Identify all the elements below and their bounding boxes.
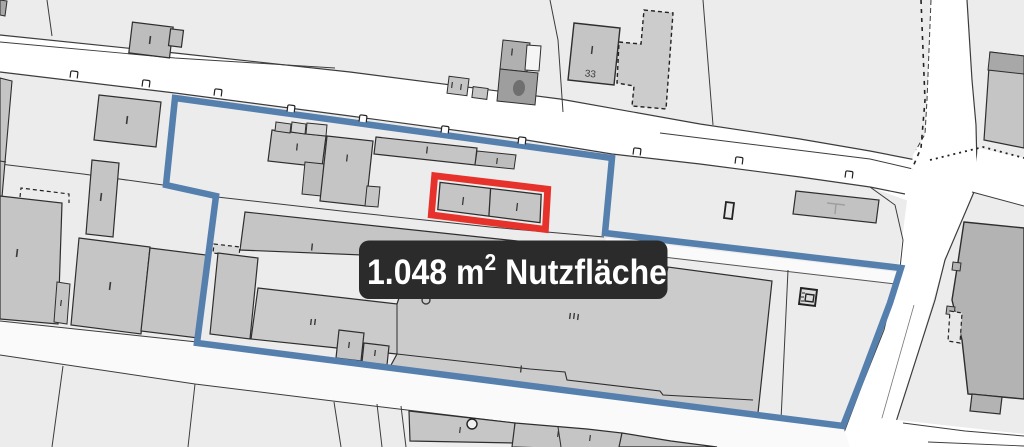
svg-text:1.048 m2 Nutzfläche: 1.048 m2 Nutzfläche [367, 249, 667, 292]
svg-text:33: 33 [584, 68, 597, 80]
